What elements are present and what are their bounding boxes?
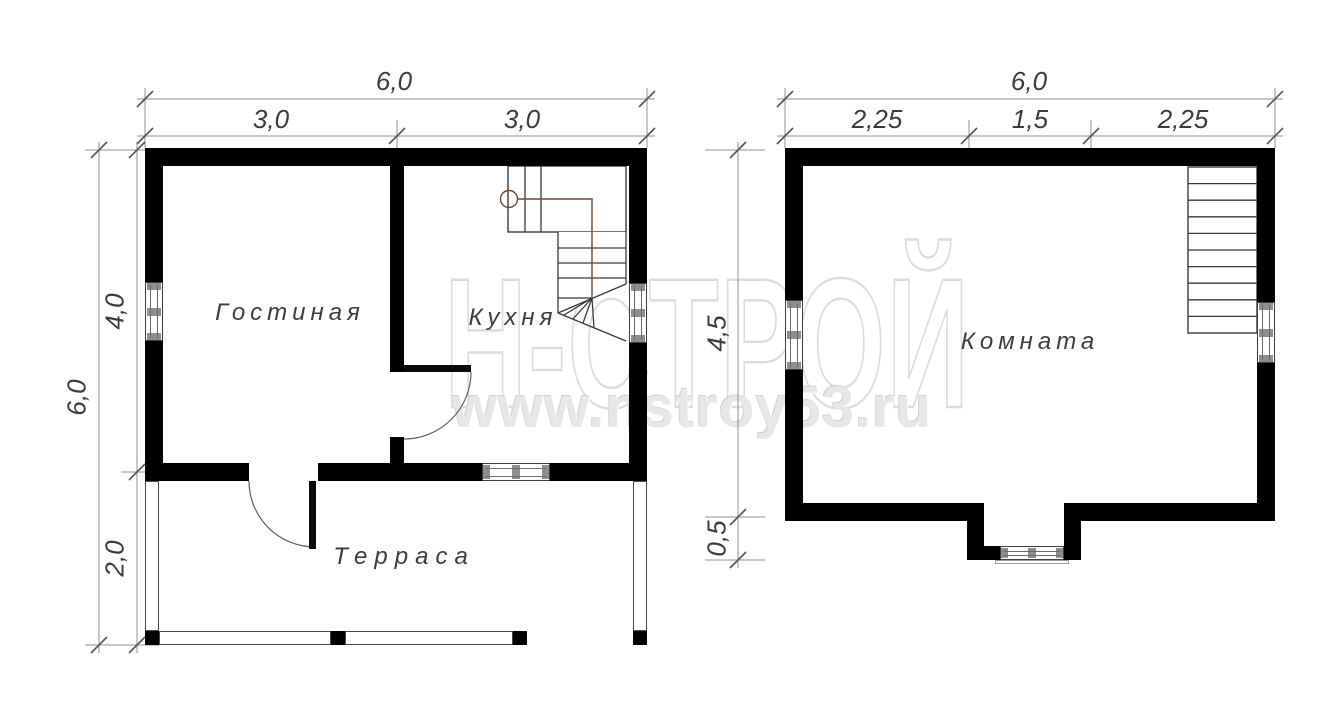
dim-top-seg1-f2: 2,25 xyxy=(817,104,937,135)
wall-right-upper-f2 xyxy=(1257,148,1275,302)
dim-top-total-f1: 6,0 xyxy=(344,66,444,97)
wall-left-lower-f2 xyxy=(785,370,803,521)
door-leaf-terrace xyxy=(309,481,316,549)
door-arcs xyxy=(249,372,471,547)
terrace-railing-left xyxy=(145,481,159,631)
wall-left-lower xyxy=(145,341,163,481)
dim-top-seg1-f1: 3,0 xyxy=(221,104,321,135)
wall-protrusion-left xyxy=(967,503,984,560)
room-label-terrace: Терраса xyxy=(304,543,504,571)
terrace-post xyxy=(633,631,647,645)
window-kitchen-right xyxy=(629,283,647,343)
dim-left-seg2-f1: 2,0 xyxy=(100,509,131,609)
room-label-kitchen: Кухня xyxy=(433,304,593,332)
dim-top-seg2-f2: 1,5 xyxy=(980,104,1080,135)
window-kitchen-bottom xyxy=(482,463,550,481)
wall-bottom-left-f2 xyxy=(785,503,967,521)
dim-ticks xyxy=(91,91,1283,653)
dim-left-seg1-f2: 4,5 xyxy=(702,284,733,384)
room-label-living: Гостиная xyxy=(170,299,410,327)
wall-protrusion-stub xyxy=(984,546,1000,560)
window-room-left xyxy=(785,300,803,370)
terrace-railing-bottom-b xyxy=(345,631,513,645)
floorplan-sheet: Н-СТРОЙ www.nstroy53.ru xyxy=(0,0,1340,702)
window-protrusion-bottom xyxy=(1000,546,1064,560)
dim-top-total-f2: 6,0 xyxy=(979,66,1079,97)
wall-bottom-c xyxy=(550,463,647,481)
wall-right-lower-f2 xyxy=(1257,363,1275,521)
door-leaf-kitchen xyxy=(404,365,471,372)
dim-left-total-f1: 6,0 xyxy=(62,348,93,448)
terrace-railing-right xyxy=(633,481,647,631)
window-living-left xyxy=(145,282,163,341)
window-room-right xyxy=(1257,302,1275,363)
terrace-post xyxy=(513,631,527,645)
wall-right-lower xyxy=(629,343,647,481)
wall-top xyxy=(145,148,647,166)
wall-right-upper xyxy=(629,148,647,283)
dim-left-seg2-f2: 0,5 xyxy=(702,489,733,589)
dim-left-seg1-f1: 4,0 xyxy=(100,262,131,362)
wall-protrusion-right xyxy=(1064,503,1081,560)
wall-interior-stub xyxy=(390,437,404,463)
wall-bottom-right-f2 xyxy=(1081,503,1275,521)
wall-interior-upper xyxy=(390,166,404,372)
wall-left-upper xyxy=(145,148,163,282)
terrace-post xyxy=(145,631,159,645)
stair-floor2 xyxy=(1188,167,1257,333)
window-sill-line xyxy=(995,560,1069,564)
wall-left-upper-f2 xyxy=(785,148,803,300)
dim-top-seg2-f1: 3,0 xyxy=(472,104,572,135)
wall-top-f2 xyxy=(785,148,1275,166)
wall-bottom-b xyxy=(318,463,482,481)
dim-top-seg3-f2: 2,25 xyxy=(1123,104,1243,135)
wall-bottom-a xyxy=(145,463,249,481)
room-label-room: Комната xyxy=(930,328,1130,356)
terrace-railing-bottom-a xyxy=(159,631,331,645)
terrace-post xyxy=(331,631,345,645)
